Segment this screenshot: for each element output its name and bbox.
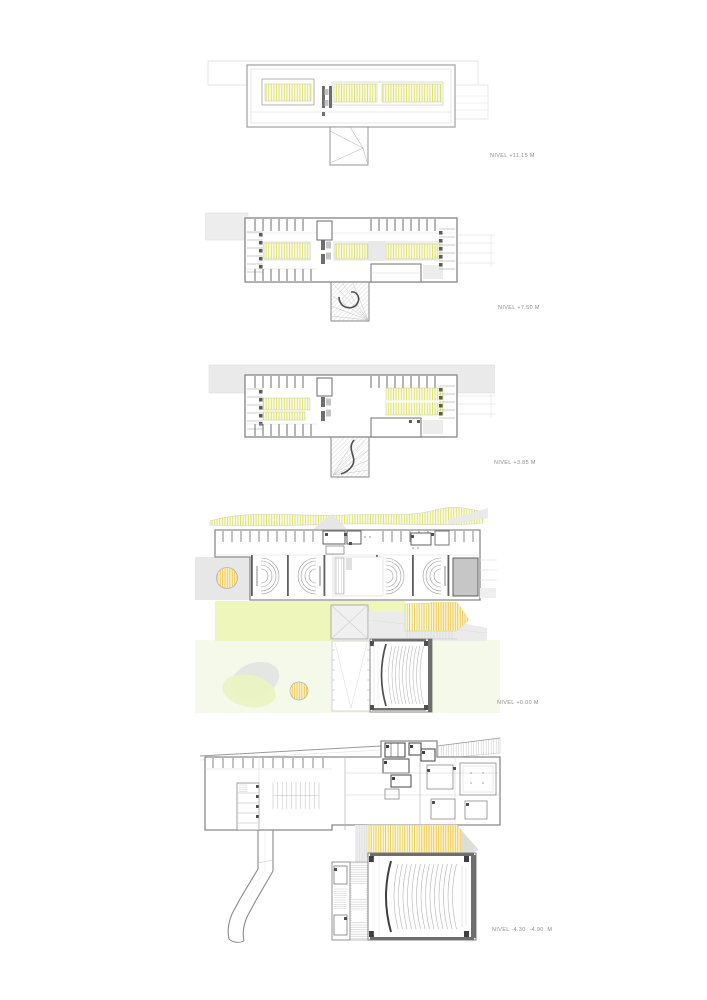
skylight-strip xyxy=(263,412,305,420)
roof-plan-drawing xyxy=(205,52,495,174)
roof-plan-figure xyxy=(205,52,495,174)
level-label: NIVEL +3.85 M xyxy=(494,461,536,467)
ground-floor-figure xyxy=(195,500,500,720)
access-ramp xyxy=(228,830,273,942)
first-floor-drawing xyxy=(205,362,495,484)
tree xyxy=(217,568,238,589)
basement-figure xyxy=(195,733,505,948)
stage-tower xyxy=(331,605,368,639)
level-label: NIVEL +7.50 M xyxy=(498,306,540,312)
service-room xyxy=(453,558,478,596)
ground-floor-drawing xyxy=(195,500,500,720)
hall-ceiling xyxy=(331,282,369,321)
courtyard xyxy=(332,641,370,711)
second-floor-drawing xyxy=(205,207,495,332)
hall xyxy=(368,853,476,940)
skylight-strip xyxy=(264,243,310,259)
main-auditorium xyxy=(332,853,476,940)
main-auditorium xyxy=(370,639,432,712)
skylight-strip xyxy=(382,84,441,102)
roof-slab xyxy=(247,65,455,127)
level-label: NIVEL -4.30 -4.90 M xyxy=(492,928,552,934)
context-roof xyxy=(205,213,248,240)
building-slab xyxy=(215,530,480,600)
skylight-strip xyxy=(334,84,377,102)
skylight-strip xyxy=(265,84,311,101)
second-floor-figure xyxy=(205,207,495,332)
tree xyxy=(290,682,308,700)
first-floor-figure xyxy=(205,362,495,484)
context-right xyxy=(480,560,497,598)
level-label: NIVEL +11.15 M xyxy=(490,154,535,160)
drawing-sheet: NIVEL +11.15 M NIVEL +7.50 M NIVEL +3.85… xyxy=(0,0,707,1000)
floor-slab xyxy=(245,375,457,437)
side-aisle xyxy=(350,862,368,940)
skylight-strip xyxy=(263,398,310,410)
circulation-core xyxy=(355,825,367,862)
green-roof-band xyxy=(210,507,488,529)
basement-drawing xyxy=(195,733,505,948)
skylight-strip xyxy=(335,244,368,259)
core xyxy=(335,558,344,594)
hall-ceiling xyxy=(331,437,369,477)
floor-slab xyxy=(245,218,457,282)
level-label: NIVEL +0.00 M xyxy=(497,701,539,707)
flytower-roof xyxy=(330,127,368,165)
context-right xyxy=(457,235,495,267)
skylight-strip xyxy=(386,244,440,259)
context-right xyxy=(457,394,495,418)
